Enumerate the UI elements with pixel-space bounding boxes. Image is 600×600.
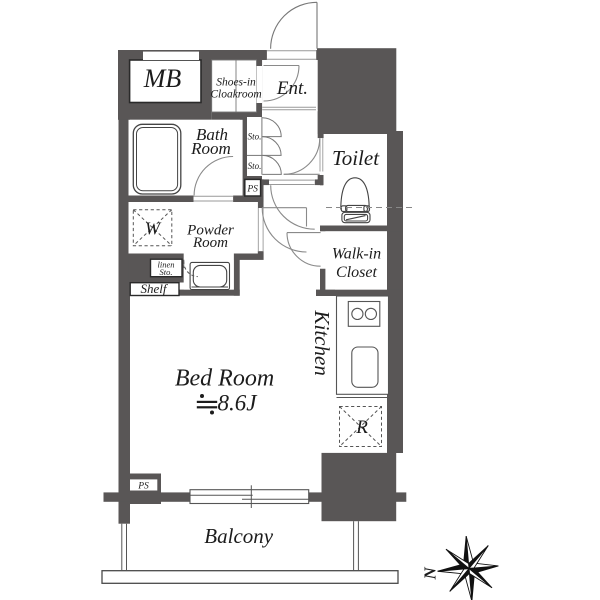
svg-text:Ent.: Ent. <box>276 78 308 99</box>
svg-text:W: W <box>145 219 162 239</box>
svg-text:Bed Room: Bed Room <box>175 366 274 392</box>
svg-text:Sto.: Sto. <box>248 132 262 142</box>
svg-text:Closet: Closet <box>336 264 377 281</box>
svg-text:Kitchen: Kitchen <box>310 310 334 376</box>
svg-text:N: N <box>421 567 440 581</box>
svg-text:Room: Room <box>192 235 228 251</box>
svg-text:Balcony: Balcony <box>204 524 273 548</box>
svg-text:MB: MB <box>143 64 182 93</box>
svg-text:PS: PS <box>246 185 258 195</box>
svg-text:8.6J: 8.6J <box>218 391 259 416</box>
svg-text:Shelf: Shelf <box>141 281 169 296</box>
svg-text:Cloakroom: Cloakroom <box>210 89 261 101</box>
svg-text:Room: Room <box>190 139 231 158</box>
svg-text:Walk-in: Walk-in <box>332 245 381 262</box>
svg-text:Sto.: Sto. <box>160 267 173 277</box>
svg-text:PS: PS <box>137 481 149 491</box>
svg-text:Shoes-in: Shoes-in <box>216 77 256 89</box>
svg-text:Toilet: Toilet <box>332 146 380 170</box>
svg-text:Sto.: Sto. <box>248 161 262 171</box>
svg-text:R: R <box>355 417 368 438</box>
